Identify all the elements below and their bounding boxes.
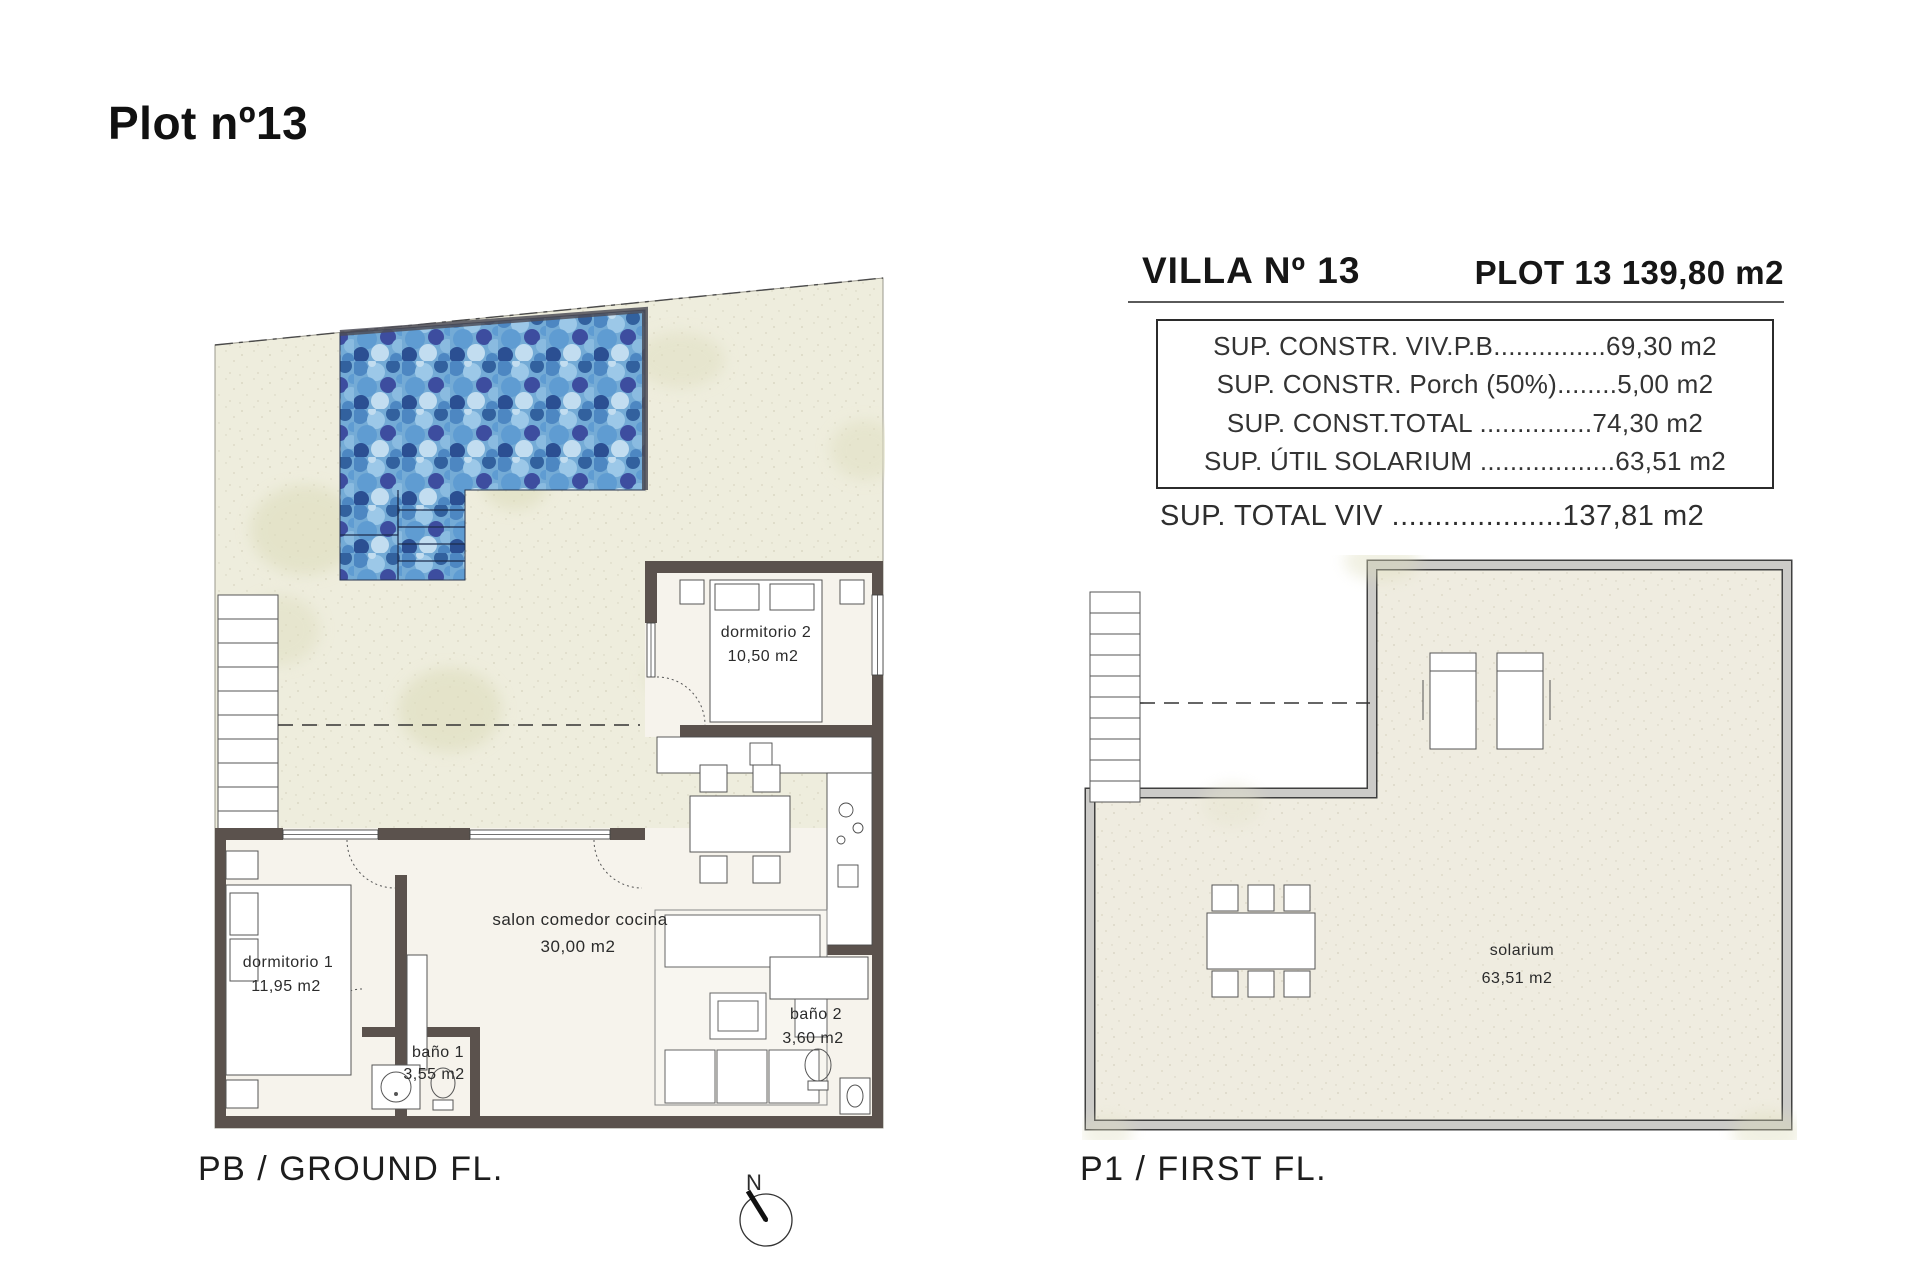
- room-area: 3,60 m2: [782, 1030, 843, 1047]
- spec-total-row: SUP. TOTAL VIV ....................137,8…: [1160, 500, 1800, 533]
- room-label: dormitorio 2: [721, 624, 811, 641]
- room-area: 30,00 m2: [541, 937, 616, 956]
- north-compass: N: [700, 1160, 835, 1275]
- room-label: solarium: [1490, 942, 1554, 959]
- outdoor-dining-set: [1207, 885, 1315, 997]
- ground-floor-plan: dormitorio 2 10,50 m2 dormitorio 1 11,95…: [210, 265, 885, 1140]
- room-area: 11,95 m2: [251, 978, 321, 995]
- room-area: 63,51 m2: [1482, 970, 1553, 987]
- ground-floor-caption: PB / GROUND FL.: [198, 1150, 504, 1189]
- villa-number-label: VILLA Nº 13: [1142, 250, 1360, 292]
- page-title: Plot nº13: [108, 96, 308, 150]
- first-floor-stairs: [1090, 592, 1140, 802]
- spec-row: SUP. CONST.TOTAL ...............74,30 m2: [1158, 408, 1772, 439]
- room-area: 3,55 m2: [403, 1066, 464, 1083]
- spec-header: VILLA Nº 13 PLOT 13 139,80 m2: [1128, 250, 1784, 303]
- first-floor-caption: P1 / FIRST FL.: [1080, 1150, 1327, 1189]
- room-label: dormitorio 1: [243, 954, 333, 971]
- surface-spec-table: SUP. CONSTR. VIV.P.B...............69,30…: [1156, 319, 1774, 489]
- spec-row: SUP. CONSTR. Porch (50%)........5,00 m2: [1158, 369, 1772, 400]
- garden-stairs: [218, 595, 278, 835]
- solarium-structure: [1090, 565, 1787, 1125]
- first-floor-plan: solarium 63,51 m2: [1082, 555, 1797, 1140]
- room-label: salon comedor cocina: [492, 910, 667, 929]
- spec-row: SUP. ÚTIL SOLARIUM ..................63,…: [1158, 446, 1772, 477]
- room-area: 10,50 m2: [728, 648, 799, 665]
- room-label: baño 1: [412, 1044, 464, 1061]
- spec-row: SUP. CONSTR. VIV.P.B...............69,30…: [1158, 331, 1772, 362]
- plot-size-label: PLOT 13 139,80 m2: [1475, 254, 1784, 292]
- room-label: baño 2: [790, 1006, 842, 1023]
- floorplan-page: { "page": { "title": "Plot nº13" }, "spe…: [0, 0, 1920, 1280]
